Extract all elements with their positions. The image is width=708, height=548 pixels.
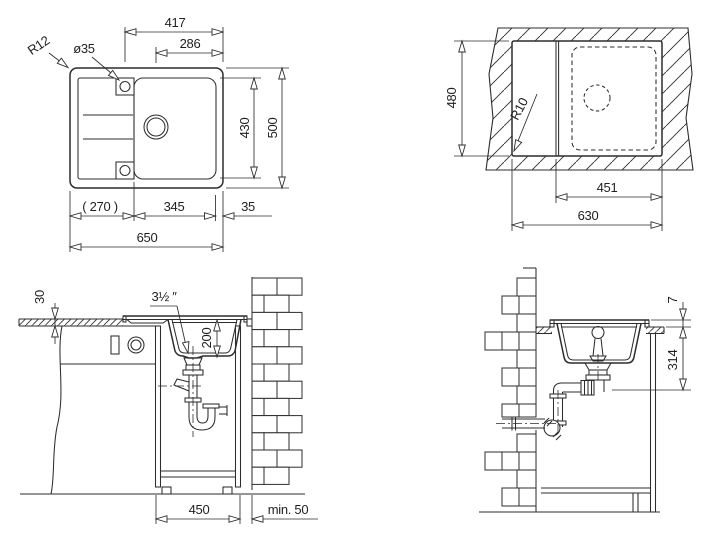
- dim-450: 450: [189, 502, 210, 517]
- dim-480: 480: [444, 88, 459, 109]
- brick-wall-left: [485, 268, 536, 512]
- dim-7: 7: [665, 296, 680, 303]
- dim-451: 451: [597, 180, 618, 195]
- bowl: [134, 78, 216, 179]
- drain-pipework: [496, 354, 611, 440]
- drain-hole: [144, 115, 168, 139]
- cabinet-leg: [223, 487, 232, 494]
- dim-200: 200: [199, 328, 214, 349]
- under-counter-appliance: [51, 326, 155, 494]
- technical-drawing-page: R12 ø35 417 286 430 500: [0, 0, 708, 548]
- brick-wall-right: [252, 277, 302, 490]
- dim-417: 417: [165, 15, 186, 30]
- tap-hole-box-top: [116, 78, 134, 95]
- dim-35: 35: [241, 199, 255, 214]
- dim-430: 430: [237, 118, 252, 139]
- washer-spigot: [174, 379, 189, 391]
- worktop-side-section: [536, 327, 664, 334]
- side-section-view: 7 314: [479, 268, 691, 512]
- overflow-knob: [592, 327, 604, 339]
- dim-270: ( 270 ): [82, 199, 117, 214]
- sink-front-section: [123, 316, 247, 358]
- tap-hole-label: ø35: [73, 41, 95, 56]
- sink-side-section: [550, 320, 649, 363]
- corner-radius-label: R12: [25, 33, 52, 58]
- appliance-display: [111, 336, 119, 354]
- bowl-inner: [561, 324, 637, 361]
- base-cabinet-front: [156, 326, 241, 494]
- cutout-opening: [512, 41, 662, 156]
- sink-top-view: R12 ø35 417 286 430 500: [25, 15, 289, 252]
- side-section-dimensions: 7 314: [612, 296, 691, 390]
- drain-and-trap: [158, 346, 227, 437]
- dim-345: 345: [164, 199, 185, 214]
- drain-size-label: 3½ ″: [151, 289, 177, 304]
- dim-min-50: min. 50: [268, 502, 309, 517]
- worktop-cutout-view: R10 480 451 630: [444, 28, 693, 231]
- leader-tap-hole: ø35: [73, 41, 121, 83]
- leader-r12: R12: [25, 33, 70, 71]
- appliance-knob: [128, 337, 144, 353]
- tap-hole-box-bottom: [116, 162, 134, 179]
- dim-630: 630: [578, 208, 599, 223]
- dim-286: 286: [180, 36, 201, 51]
- dim-650: 650: [137, 230, 158, 245]
- front-section-view: 30 3½ ″ 200 450 min. 50: [19, 277, 318, 524]
- cabinet-leg: [162, 487, 171, 494]
- dim-30: 30: [32, 290, 47, 304]
- sink-outline: [70, 68, 223, 188]
- technical-drawing: R12 ø35 417 286 430 500: [0, 0, 708, 548]
- bowl-outer: [557, 324, 641, 364]
- dim-314: 314: [665, 350, 680, 371]
- dim-500: 500: [265, 118, 280, 139]
- top-view-dimensions: 417 286 430 500 ( 270 ) 345: [70, 15, 289, 252]
